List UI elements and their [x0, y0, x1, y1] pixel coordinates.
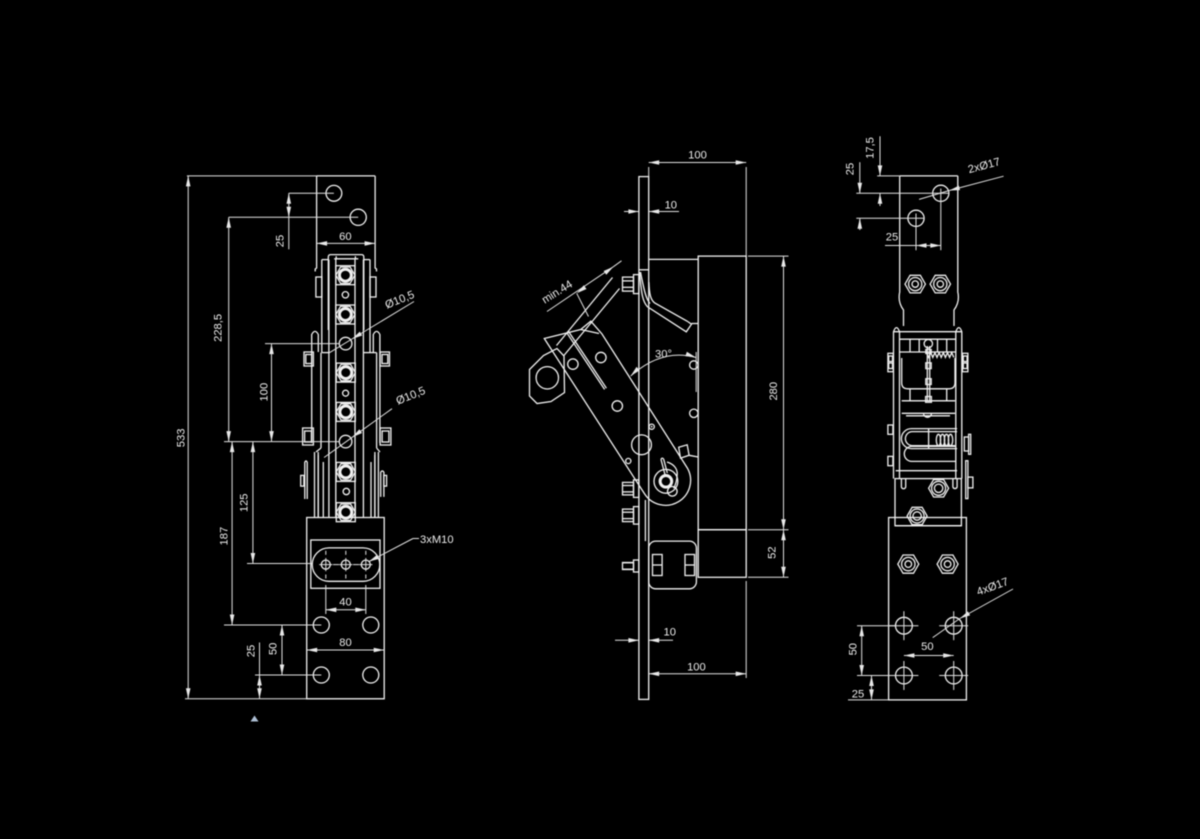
svg-text:187: 187	[219, 527, 231, 546]
svg-text:50: 50	[268, 643, 280, 655]
svg-text:2xØ17: 2xØ17	[967, 156, 1002, 176]
svg-text:Ø10,5: Ø10,5	[394, 385, 427, 408]
svg-text:40: 40	[339, 597, 351, 609]
svg-text:533: 533	[175, 429, 187, 448]
svg-text:17,5: 17,5	[865, 137, 877, 159]
svg-text:50: 50	[848, 643, 860, 655]
svg-text:60: 60	[339, 231, 351, 243]
svg-text:4xØ17: 4xØ17	[975, 576, 1010, 599]
svg-text:52: 52	[767, 546, 779, 558]
svg-text:125: 125	[239, 493, 251, 512]
svg-text:25: 25	[886, 232, 898, 244]
svg-text:30°: 30°	[655, 348, 672, 360]
svg-text:100: 100	[688, 150, 707, 162]
svg-text:25: 25	[852, 689, 864, 701]
svg-text:50: 50	[921, 641, 933, 653]
svg-text:3xM10: 3xM10	[420, 534, 454, 546]
svg-text:100: 100	[687, 662, 706, 674]
svg-text:228,5: 228,5	[213, 314, 225, 342]
svg-text:100: 100	[258, 383, 270, 402]
svg-text:80: 80	[339, 637, 351, 649]
svg-text:280: 280	[768, 382, 780, 401]
svg-text:25: 25	[845, 163, 857, 175]
svg-text:10: 10	[665, 199, 677, 211]
svg-text:10: 10	[663, 627, 675, 639]
svg-text:25: 25	[246, 645, 258, 657]
svg-text:min.44: min.44	[540, 278, 575, 306]
svg-text:Ø10,5: Ø10,5	[383, 289, 416, 312]
svg-text:25: 25	[275, 235, 287, 247]
